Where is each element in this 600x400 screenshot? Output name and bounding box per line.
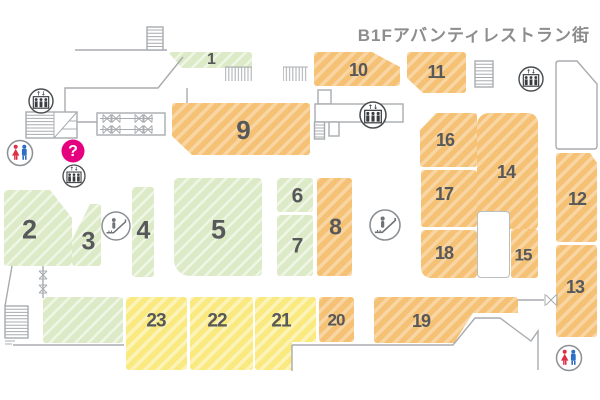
open-area (556, 61, 597, 149)
elevator-icon-central (360, 102, 386, 128)
elevator-icon-upper-right (519, 67, 543, 91)
restroom-icon-lower-right (557, 346, 582, 371)
grille (225, 67, 252, 81)
restroom-icon-left (8, 141, 33, 166)
building-walls (5, 50, 597, 371)
elevator-icon-center-left (63, 165, 85, 187)
entrance-doors (97, 113, 165, 135)
map-icons (8, 67, 582, 371)
escalator-icon-left (102, 212, 130, 240)
floor-map: ↑↓ (0, 0, 600, 400)
information-icon (62, 140, 85, 163)
floor-map-canvas: ↑↓ (0, 0, 600, 400)
grille (283, 67, 308, 81)
page-title: B1Fアバンティレストラン街 (358, 21, 590, 46)
doors (39, 113, 557, 306)
corridor (315, 104, 403, 122)
escalator-icon-right (370, 210, 400, 240)
elevator-icon-upper-left (29, 89, 53, 113)
